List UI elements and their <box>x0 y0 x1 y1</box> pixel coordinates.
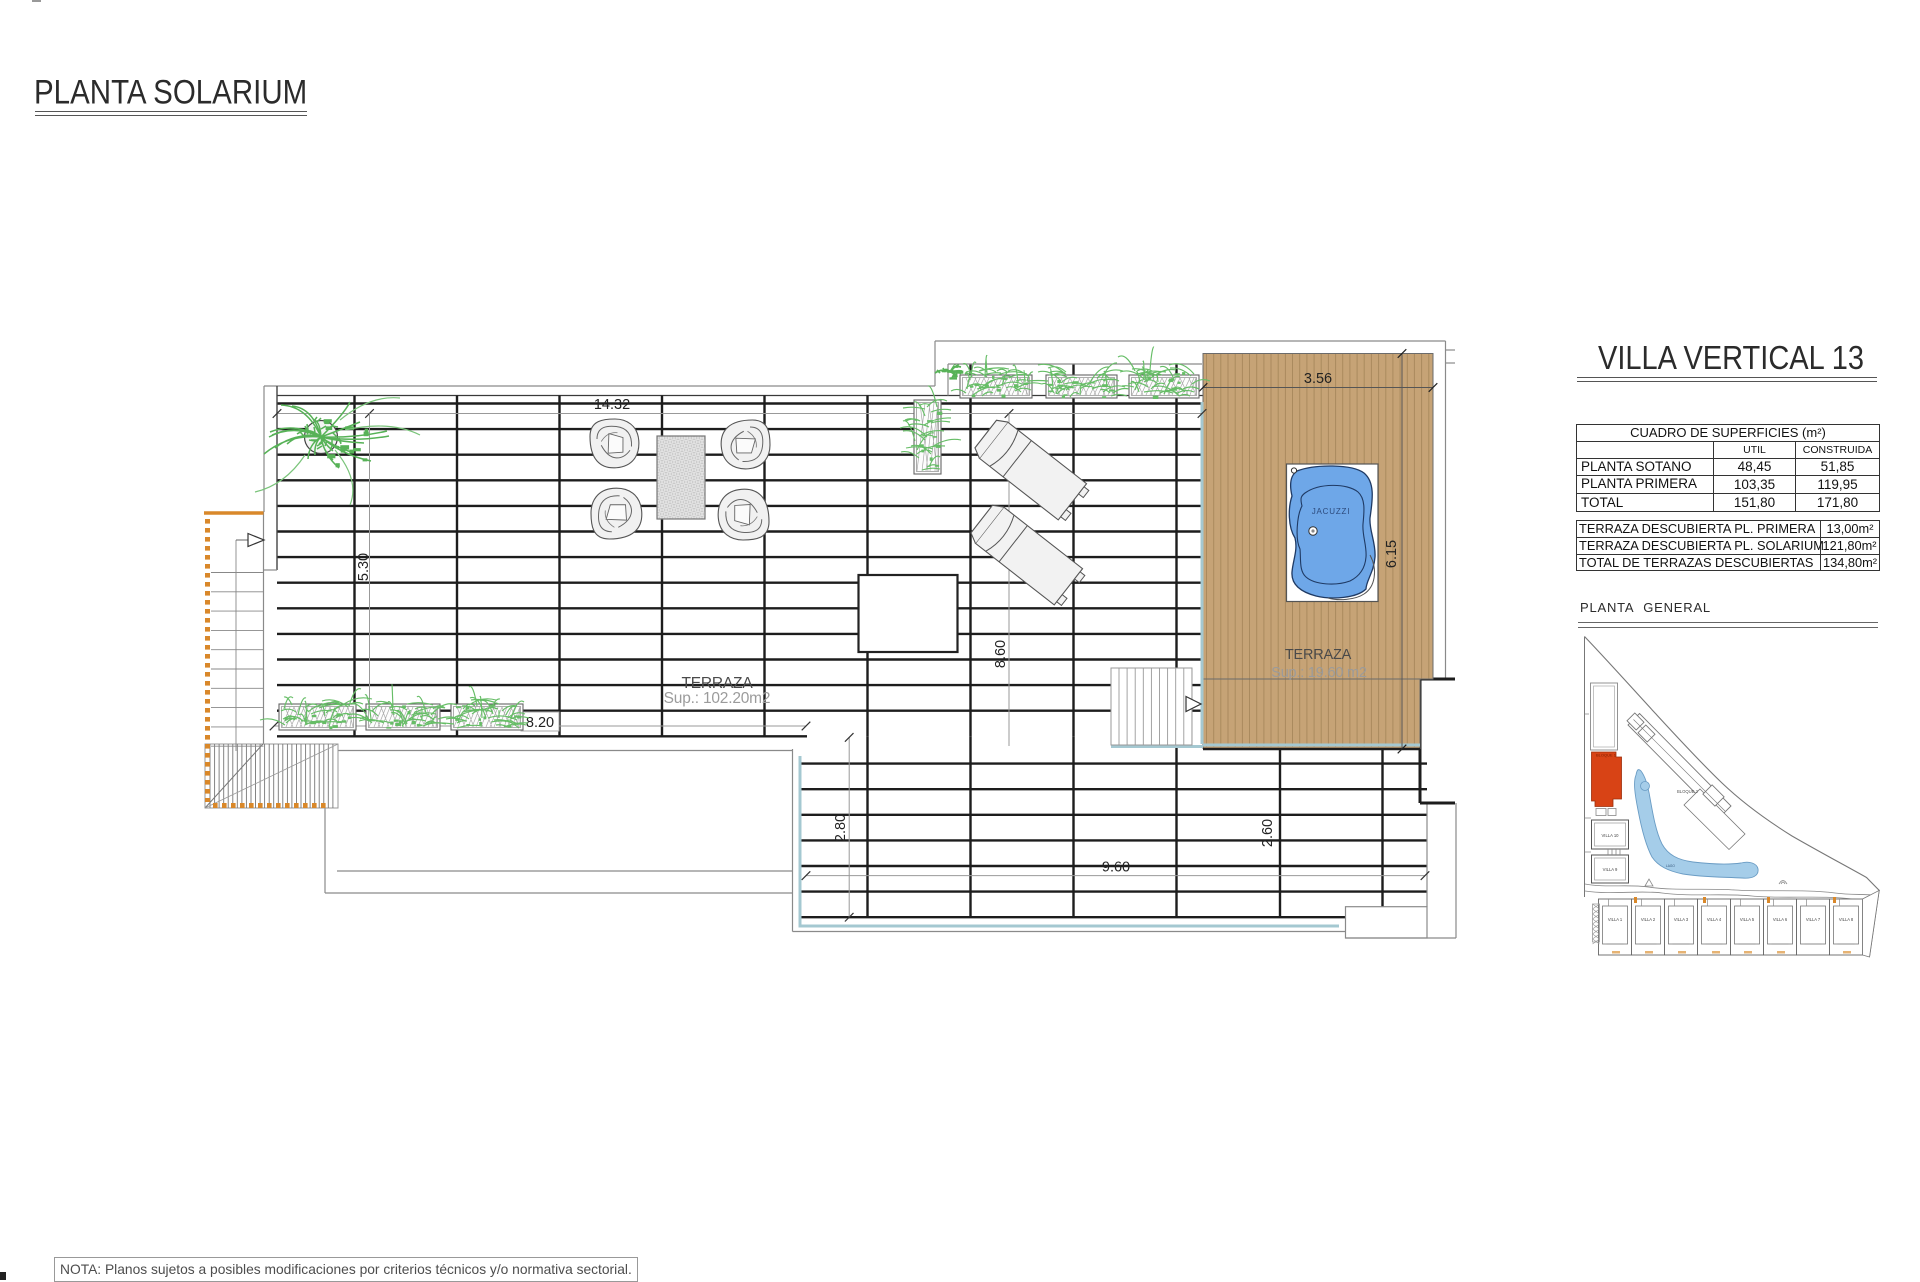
svg-text:LAGO: LAGO <box>1666 864 1675 868</box>
svg-text:VILLA 1: VILLA 1 <box>1608 917 1623 922</box>
svg-text:VILLA 10: VILLA 10 <box>1602 833 1620 838</box>
svg-text:JACUZZI: JACUZZI <box>1312 507 1351 516</box>
svg-text:14.32: 14.32 <box>594 397 630 413</box>
svg-text:VILLA 5: VILLA 5 <box>1740 917 1755 922</box>
svg-text:5.30: 5.30 <box>356 553 372 581</box>
svg-text:BLOQUE 2: BLOQUE 2 <box>1677 789 1699 794</box>
svg-text:TERRAZA: TERRAZA <box>1285 647 1352 663</box>
svg-text:BLOQUE 1: BLOQUE 1 <box>1596 753 1617 758</box>
svg-text:2.60: 2.60 <box>1260 819 1276 847</box>
svg-text:2.80: 2.80 <box>833 814 849 842</box>
svg-text:9.60: 9.60 <box>1102 860 1130 876</box>
svg-text:3.56: 3.56 <box>1304 371 1332 387</box>
svg-text:VILLA 3: VILLA 3 <box>1674 917 1689 922</box>
svg-text:Sup.: 102.20m2: Sup.: 102.20m2 <box>664 690 771 707</box>
svg-text:VILLA 9: VILLA 9 <box>1603 867 1618 872</box>
svg-text:8.60: 8.60 <box>993 640 1009 668</box>
svg-text:VILLA 6: VILLA 6 <box>1773 917 1788 922</box>
svg-text:Sup.: 19.60 m2: Sup.: 19.60 m2 <box>1271 665 1367 681</box>
svg-text:VILLA 8: VILLA 8 <box>1839 917 1854 922</box>
svg-text:VILLA 7: VILLA 7 <box>1806 917 1821 922</box>
svg-text:8.20: 8.20 <box>526 715 554 731</box>
svg-text:6.15: 6.15 <box>1384 540 1400 568</box>
svg-text:VILLA 4: VILLA 4 <box>1707 917 1722 922</box>
svg-text:VILLA 2: VILLA 2 <box>1641 917 1656 922</box>
